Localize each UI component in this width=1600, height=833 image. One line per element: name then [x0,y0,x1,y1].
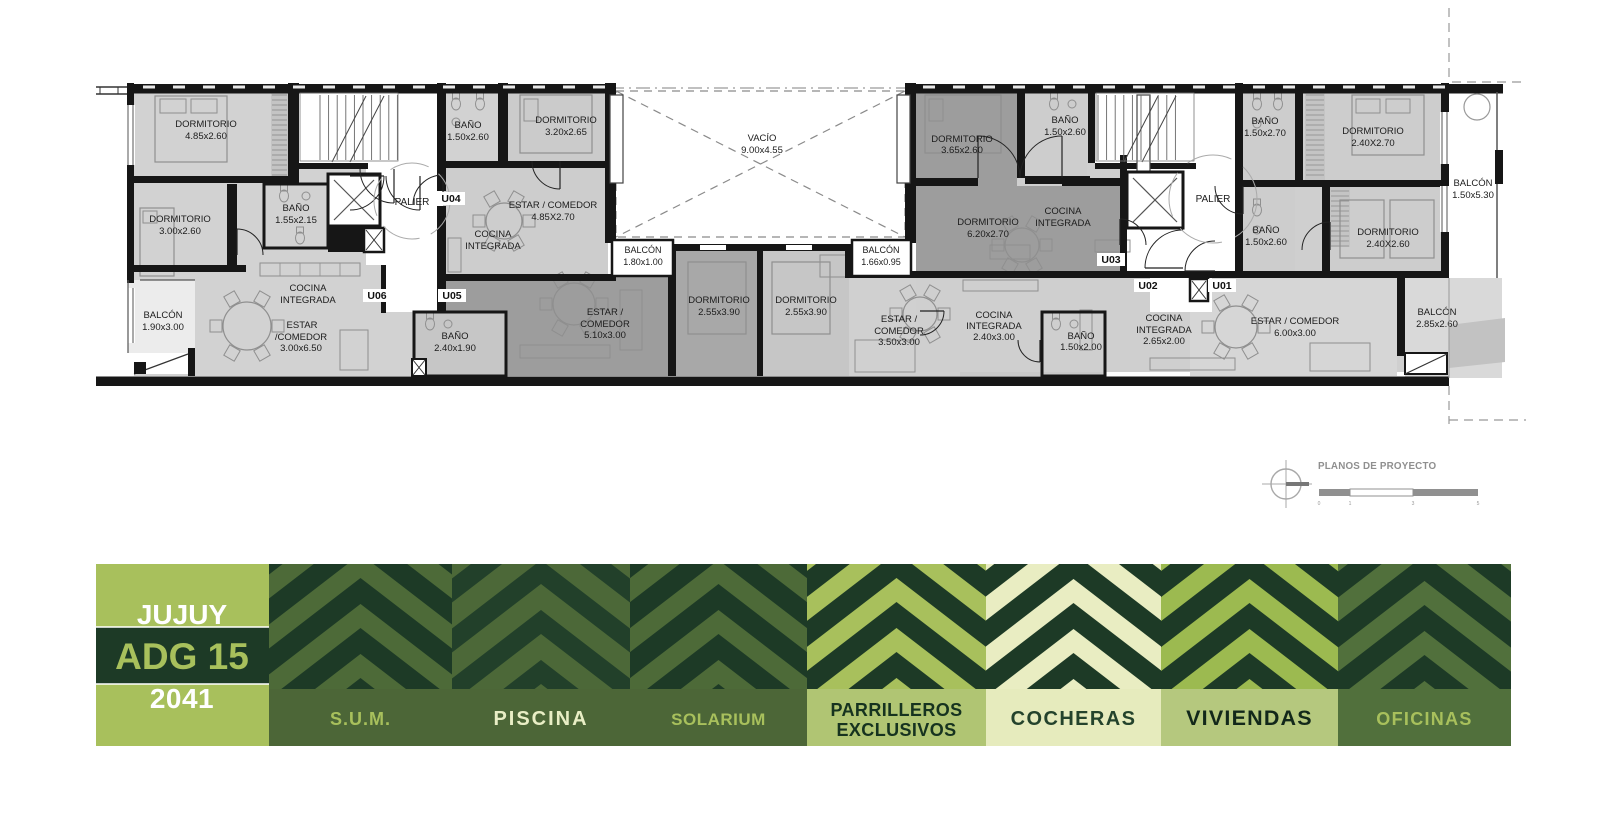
svg-text:COCINA: COCINA [1045,206,1083,217]
svg-text:BAÑO: BAÑO [1068,331,1095,342]
svg-text:DORMITORIO: DORMITORIO [957,217,1019,228]
svg-text:ESTAR /: ESTAR / [881,314,918,325]
svg-text:BALCÓN: BALCÓN [1453,178,1492,189]
svg-text:ESTAR: ESTAR [287,320,318,331]
svg-text:0: 0 [1318,501,1321,507]
svg-text:3.00x2.60: 3.00x2.60 [159,226,201,237]
svg-text:BAÑO: BAÑO [1252,116,1279,127]
svg-text:1.50x2.70: 1.50x2.70 [1244,128,1286,139]
svg-text:BAÑO: BAÑO [1253,225,1280,236]
svg-text:INTEGRADA: INTEGRADA [966,321,1022,332]
svg-text:3.50x3.00: 3.50x3.00 [878,337,920,348]
svg-text:DORMITORIO: DORMITORIO [149,214,211,225]
svg-text:PLANOS DE PROYECTO: PLANOS DE PROYECTO [1318,461,1436,472]
svg-text:BAÑO: BAÑO [442,331,469,342]
svg-text:1.50x2.00: 1.50x2.00 [1060,342,1102,353]
svg-text:ADG 15: ADG 15 [115,636,249,677]
svg-text:BAÑO: BAÑO [283,203,310,214]
svg-text:BALCÓN: BALCÓN [624,245,661,255]
svg-text:2.40x3.00: 2.40x3.00 [973,332,1015,343]
svg-text:3.20x2.65: 3.20x2.65 [545,127,587,138]
svg-text:COMEDOR: COMEDOR [874,326,924,337]
svg-text:VIVIENDAS: VIVIENDAS [1186,706,1313,730]
svg-text:2.40x1.90: 2.40x1.90 [434,343,476,354]
svg-text:2.40X2.60: 2.40X2.60 [1366,239,1409,250]
svg-text:5.10x3.00: 5.10x3.00 [584,330,626,341]
svg-text:1.90x3.00: 1.90x3.00 [142,322,184,333]
svg-text:4.85X2.70: 4.85X2.70 [531,212,574,223]
svg-text:VACÍO: VACÍO [748,133,777,144]
svg-text:2.85x2.60: 2.85x2.60 [1416,319,1458,330]
svg-text:COCINA: COCINA [475,229,513,240]
svg-text:U01: U01 [1212,280,1231,292]
svg-text:ESTAR /: ESTAR / [587,307,624,318]
svg-text:DORMITORIO: DORMITORIO [175,119,237,130]
svg-text:2.55x3.90: 2.55x3.90 [785,307,827,318]
svg-text:U04: U04 [441,193,460,205]
svg-text:U03: U03 [1101,254,1120,266]
svg-text:OFICINAS: OFICINAS [1376,709,1472,729]
svg-text:2.55x3.90: 2.55x3.90 [698,307,740,318]
svg-text:1.80x1.00: 1.80x1.00 [623,257,663,267]
svg-text:3.65x2.60: 3.65x2.60 [941,145,983,156]
svg-text:ESTAR / COMEDOR: ESTAR / COMEDOR [1251,316,1340,327]
svg-text:INTEGRADA: INTEGRADA [1035,218,1091,229]
svg-text:COCINA: COCINA [976,310,1014,321]
svg-text:BALCÓN: BALCÓN [862,245,899,255]
svg-text:PISCINA: PISCINA [493,708,588,730]
svg-text:BAÑO: BAÑO [455,120,482,131]
svg-text:1: 1 [1349,501,1352,507]
svg-text:DORMITORIO: DORMITORIO [1357,227,1419,238]
svg-text:1.50x2.60: 1.50x2.60 [1245,237,1287,248]
svg-text:PARRILLEROS: PARRILLEROS [830,700,962,720]
svg-text:U05: U05 [442,290,461,302]
svg-text:DORMITORIO: DORMITORIO [931,134,993,145]
svg-text:1.50x5.30: 1.50x5.30 [1452,190,1494,201]
svg-text:INTEGRADA: INTEGRADA [465,241,521,252]
svg-text:PALIER: PALIER [395,197,430,208]
svg-text:BAÑO: BAÑO [1052,115,1079,126]
svg-text:DORMITORIO: DORMITORIO [688,295,750,306]
svg-text:6.00x3.00: 6.00x3.00 [1274,328,1316,339]
svg-text:1.55x2.15: 1.55x2.15 [275,215,317,226]
svg-text:BALCÓN: BALCÓN [1417,307,1456,318]
svg-text:3.00x6.50: 3.00x6.50 [280,343,322,354]
svg-text:INTEGRADA: INTEGRADA [1136,325,1192,336]
svg-text:2.40X2.70: 2.40X2.70 [1351,138,1394,149]
svg-text:EXCLUSIVOS: EXCLUSIVOS [836,720,956,740]
svg-text:2.65x2.00: 2.65x2.00 [1143,336,1185,347]
svg-text:9.00x4.55: 9.00x4.55 [741,145,783,156]
svg-text:COCINA: COCINA [290,283,328,294]
svg-text:U02: U02 [1138,280,1157,292]
svg-text:S.U.M.: S.U.M. [330,709,391,729]
svg-text:BALCÓN: BALCÓN [143,310,182,321]
svg-text:3: 3 [1412,501,1415,507]
svg-text:COMEDOR: COMEDOR [580,319,630,330]
svg-text:1.66x0.95: 1.66x0.95 [861,257,901,267]
svg-text:COCHERAS: COCHERAS [1011,708,1137,730]
svg-text:2041: 2041 [150,683,214,714]
svg-text:1.50x2.60: 1.50x2.60 [1044,127,1086,138]
svg-text:SOLARIUM: SOLARIUM [671,710,766,729]
svg-text:PALIER: PALIER [1196,194,1231,205]
svg-text:U06: U06 [367,290,386,302]
svg-text:6.20x2.70: 6.20x2.70 [967,229,1009,240]
svg-text:DORMITORIO: DORMITORIO [1342,126,1404,137]
svg-text:INTEGRADA: INTEGRADA [280,295,336,306]
svg-text:1.50x2.60: 1.50x2.60 [447,132,489,143]
svg-text:ESTAR / COMEDOR: ESTAR / COMEDOR [509,200,598,211]
svg-text:JUJUY: JUJUY [137,599,228,630]
svg-text:COCINA: COCINA [1146,313,1184,324]
svg-text:/COMEDOR: /COMEDOR [275,332,327,343]
svg-text:4.85x2.60: 4.85x2.60 [185,131,227,142]
svg-text:DORMITORIO: DORMITORIO [535,115,597,126]
svg-text:5: 5 [1477,501,1480,507]
svg-text:DORMITORIO: DORMITORIO [775,295,837,306]
